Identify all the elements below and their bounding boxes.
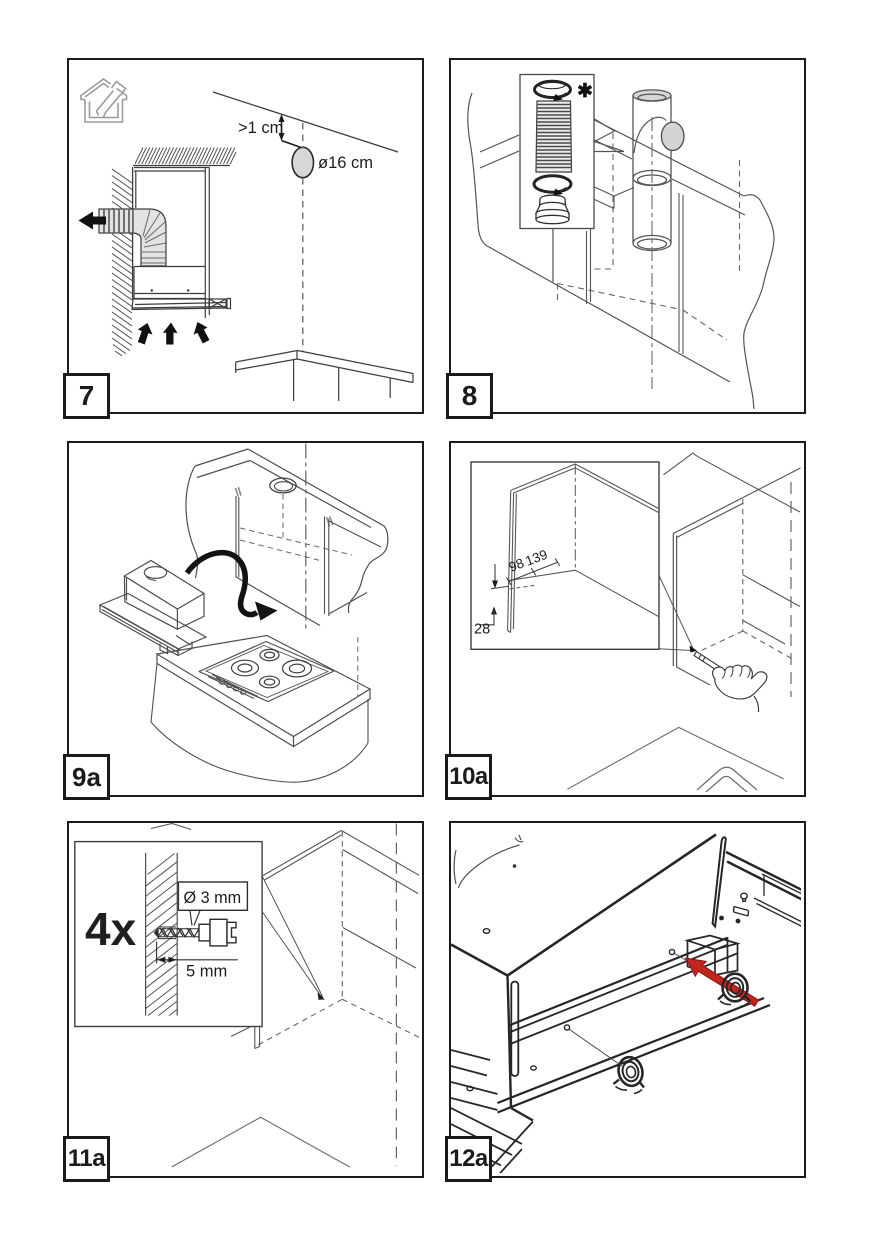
svg-text:5 mm: 5 mm [186, 963, 227, 981]
svg-text:✱: ✱ [577, 81, 593, 102]
svg-text:Ø 3 mm: Ø 3 mm [184, 889, 242, 907]
svg-text:4x: 4x [85, 903, 137, 955]
svg-text:28: 28 [474, 622, 490, 638]
svg-text:ø16 cm: ø16 cm [318, 154, 373, 172]
svg-text:>1 cm: >1 cm [238, 119, 283, 137]
